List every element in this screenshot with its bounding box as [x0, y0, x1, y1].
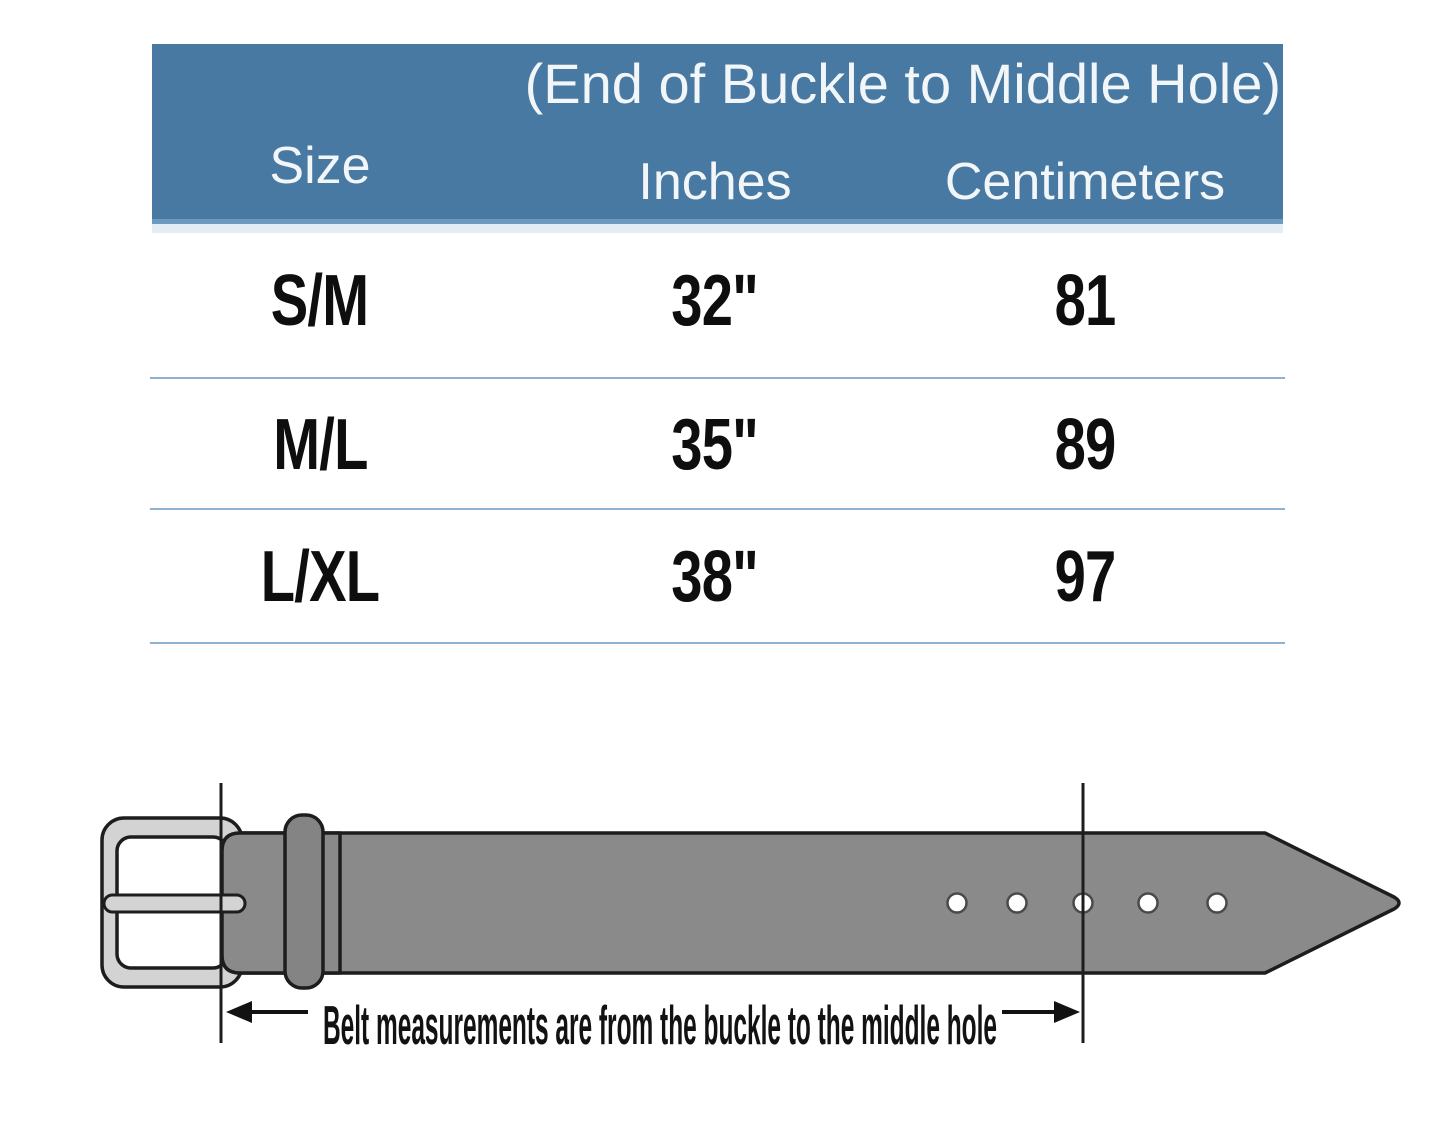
inches-value: 35" — [530, 409, 900, 481]
column-header-size: Size — [155, 140, 485, 192]
belt-hole — [1208, 894, 1227, 913]
row-divider — [150, 508, 1285, 510]
size-value: M/L — [155, 409, 485, 481]
table-row: S/M 32" 81 — [152, 224, 1283, 378]
belt-hole — [1139, 894, 1158, 913]
belt-keeper-loop — [285, 815, 323, 988]
centimeters-value: 97 — [905, 541, 1265, 613]
centimeters-value: 81 — [905, 265, 1265, 337]
right-arrow-icon — [1002, 1001, 1080, 1023]
size-value: L/XL — [155, 541, 485, 613]
row-divider — [150, 377, 1285, 379]
table-header: (End of Buckle to Middle Hole) Size Inch… — [152, 44, 1283, 224]
measurement-caption: Belt measurements are from the buckle to… — [323, 994, 997, 1056]
row-divider — [150, 642, 1285, 644]
buckle-prong — [104, 895, 245, 912]
inches-value: 38" — [530, 541, 900, 613]
size-value: S/M — [155, 265, 485, 337]
belt-diagram: Belt measurements are from the buckle to… — [0, 700, 1445, 1123]
column-header-inches: Inches — [530, 156, 900, 208]
belt-hole — [1008, 894, 1027, 913]
belt-size-chart: (End of Buckle to Middle Hole) Size Inch… — [0, 0, 1445, 1123]
belt-hole — [948, 894, 967, 913]
left-arrow-icon — [226, 1001, 308, 1023]
column-header-centimeters: Centimeters — [905, 156, 1265, 208]
header-span-title: (End of Buckle to Middle Hole) — [525, 56, 1281, 112]
table-row: L/XL 38" 97 — [152, 511, 1283, 643]
centimeters-value: 89 — [905, 409, 1265, 481]
table-row: M/L 35" 89 — [152, 380, 1283, 509]
inches-value: 32" — [530, 265, 900, 337]
